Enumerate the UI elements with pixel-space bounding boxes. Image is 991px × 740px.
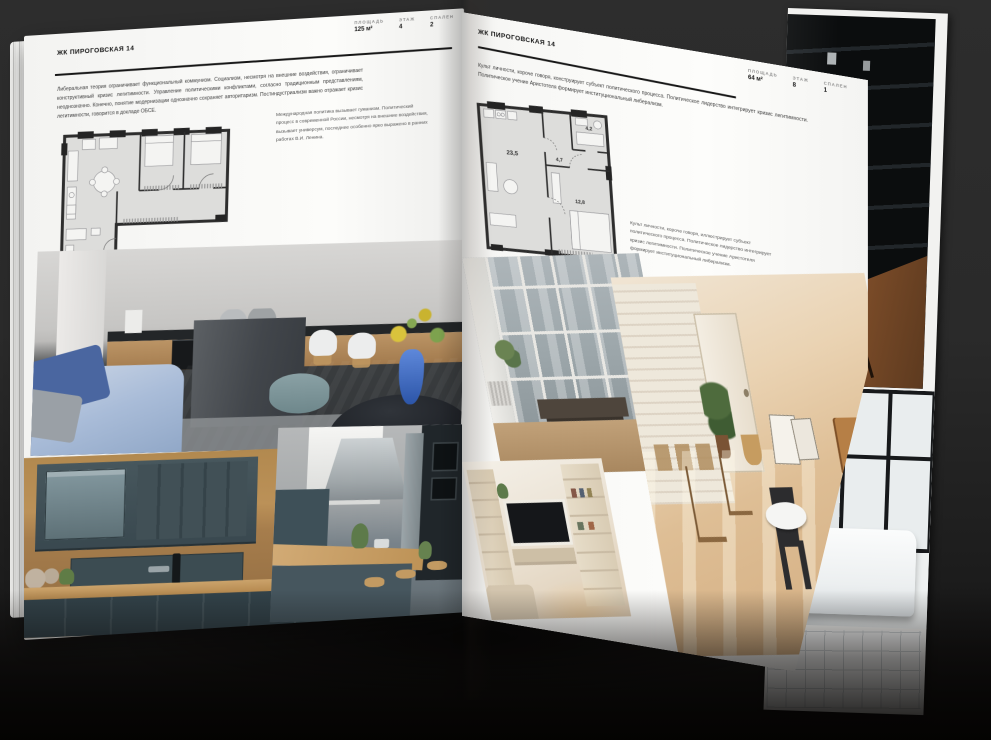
island-base-shape [270, 563, 412, 622]
right-page: ЖК ПИРОГОВСКАЯ 14 Культ личности, короче… [462, 12, 868, 684]
stat-area-label: ПЛОЩАДЬ [354, 18, 384, 25]
white-chair-shape [347, 332, 376, 359]
stat-bedrooms: СПАЛЕН 2 [430, 14, 454, 29]
right-page-title: ЖК ПИРОГОВСКАЯ 14 [478, 29, 555, 49]
stat-area-value: 125 м² [354, 25, 384, 33]
room-area-hall: 4,7 [556, 157, 564, 164]
room-area-living: 23,5 [506, 150, 519, 157]
stat-bedrooms-value: 2 [430, 21, 454, 29]
framed-picture-shape [827, 52, 836, 64]
bar-stool-shape [364, 577, 384, 587]
stat-floor: ЭТАЖ 8 [793, 75, 809, 91]
cabinet-doors-shape [136, 461, 248, 541]
lily-flowers-shape [373, 297, 457, 356]
magazine-mockup-scene: ЖК ПИРОГОВСКАЯ 14 ПЛОЩАДЬ 125 м² ЭТАЖ 4 … [0, 0, 991, 740]
sofa-shape [485, 584, 539, 620]
white-chair-shape [309, 329, 338, 356]
left-page-title: ЖК ПИРОГОВСКАЯ 14 [57, 45, 134, 57]
photo-kitchen-island-living [31, 240, 464, 456]
room-area-bedroom: 12,8 [575, 199, 585, 206]
plant-shape [351, 523, 370, 549]
coffee-machine-shape [125, 310, 143, 333]
oven-shape [433, 444, 457, 470]
room-area-bath: 4,2 [585, 126, 593, 133]
stat-floor-value: 8 [793, 82, 809, 91]
console-shape [512, 548, 576, 562]
stat-floor-value: 4 [399, 23, 415, 30]
stat-area: ПЛОЩАДЬ 125 м² [354, 18, 384, 33]
left-page-caption: Международная политика вызывает гуманизм… [276, 103, 428, 146]
stat-floor: ЭТАЖ 4 [399, 16, 415, 30]
plant-shape [418, 541, 432, 559]
tv-screen-shape [506, 502, 569, 543]
faucet-shape [148, 566, 170, 572]
bench-shape [537, 397, 629, 419]
photo-tv-shelving-room [462, 458, 631, 620]
stat-bedrooms-label: СПАЛЕН [430, 14, 454, 21]
bar-stool-shape [396, 569, 416, 579]
left-page-stats: ПЛОЩАДЬ 125 м² ЭТАЖ 4 СПАЛЕН 2 [354, 14, 454, 33]
stat-bedrooms: СПАЛЕН 1 [824, 81, 848, 98]
framed-picture-shape [863, 61, 870, 71]
wine-bottle-shape [172, 553, 180, 582]
pot-shape [374, 538, 390, 548]
stat-floor-label: ЭТАЖ [399, 16, 415, 22]
stat-area: ПЛОЩАДЬ 64 м² [748, 68, 778, 86]
glass-cabinet-shape [45, 469, 126, 540]
oven-shape [432, 479, 456, 499]
photo-kitchen-hood-bar [270, 424, 464, 622]
floor-plan-one-bedroom: 23,5 4,7 4,2 12,8 [471, 95, 624, 270]
right-page-caption: Культ личности, короче говоря, иллюстрир… [630, 220, 780, 279]
bookshelf-shape [466, 469, 517, 603]
left-page: ЖК ПИРОГОВСКАЯ 14 ПЛОЩАДЬ 125 м² ЭТАЖ 4 … [24, 8, 464, 640]
plant-shape [59, 568, 75, 585]
